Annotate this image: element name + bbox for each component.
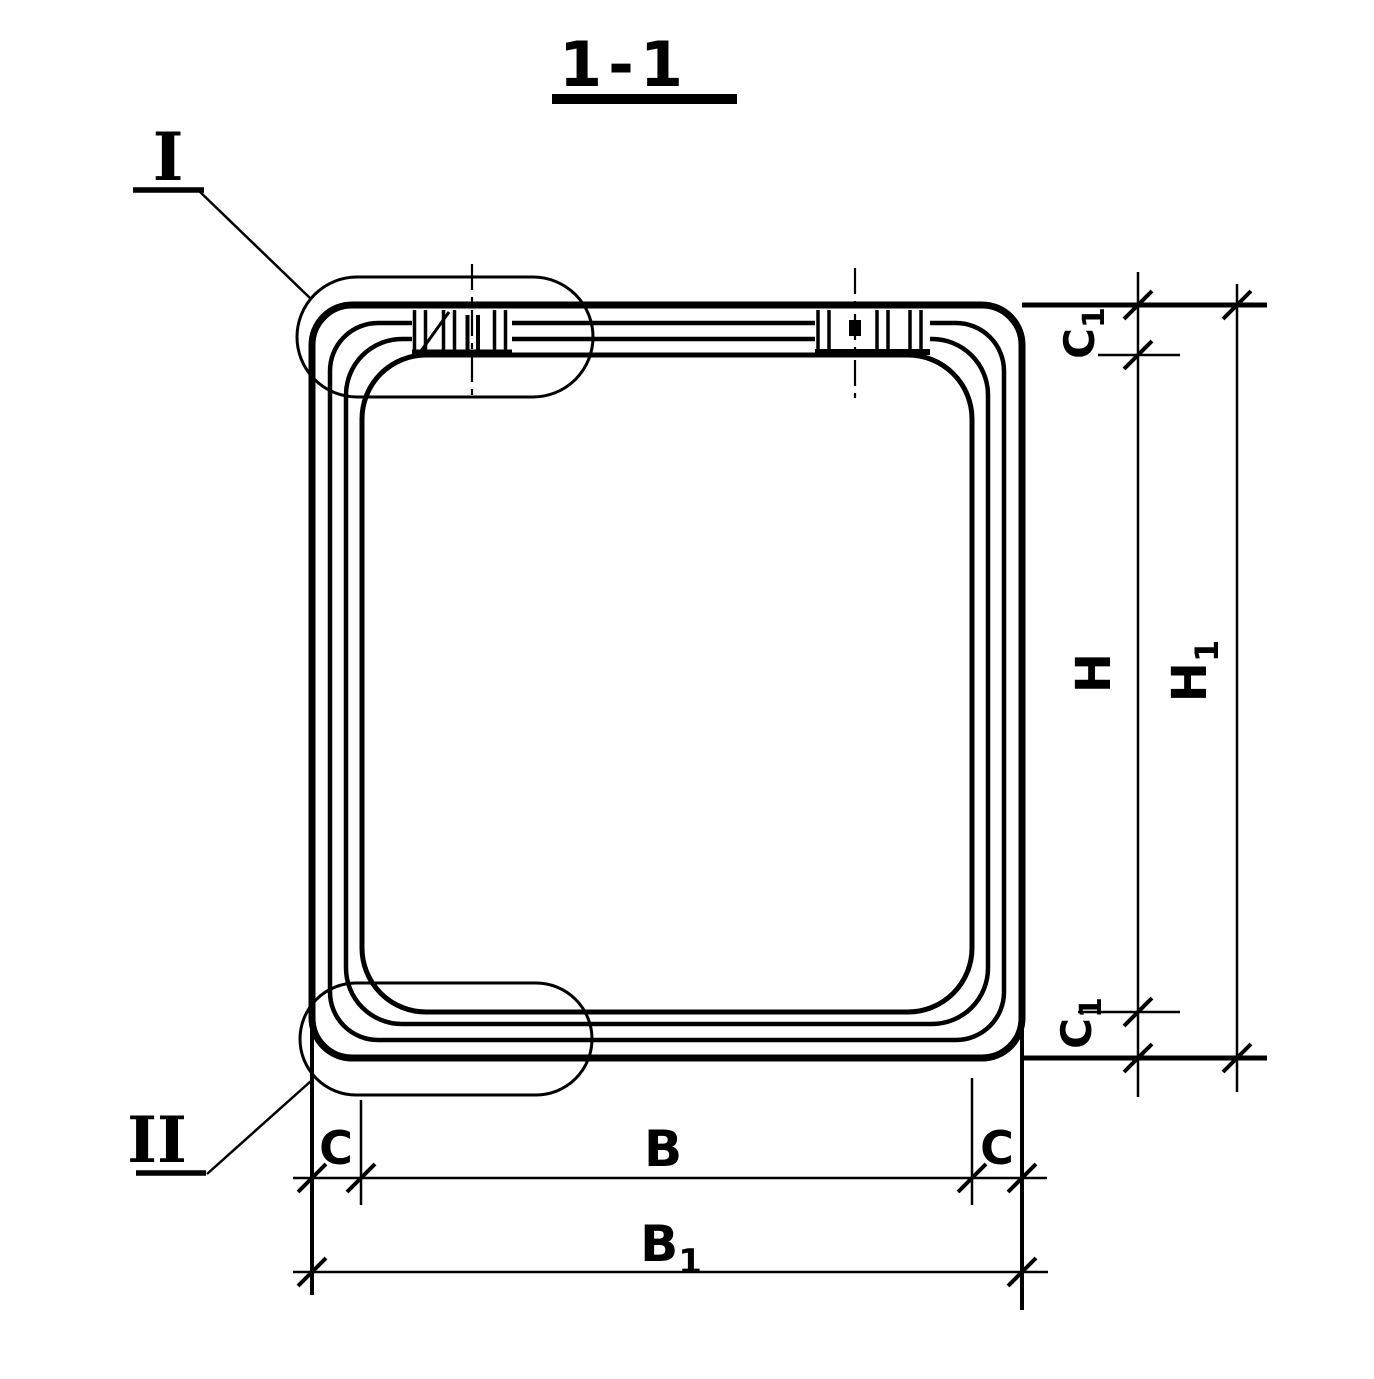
top-slab-joint-right	[815, 268, 930, 398]
callout-I-leader	[197, 189, 311, 299]
outer-contour	[312, 305, 1022, 1058]
dim-label-main: C	[1055, 328, 1104, 359]
dim-label-main: B	[640, 1215, 678, 1273]
dim-label-h1: H1	[1162, 640, 1226, 702]
dim-label-sub: 1	[678, 1242, 702, 1282]
dim-label-sub: 1	[1074, 997, 1109, 1018]
callout-I-label: I	[153, 118, 184, 196]
callout-I: I	[133, 118, 311, 299]
dim-label-c1-top: C1	[1055, 307, 1112, 359]
dimension-labels: C1 H H1 C1 C B C B1	[319, 307, 1226, 1282]
section-title: 1-1	[552, 28, 737, 101]
extension-lines	[312, 305, 1267, 1310]
dim-label-h: H	[1066, 653, 1122, 693]
dim-label-c-right: C	[980, 1121, 1014, 1175]
dim-label-main: C	[1052, 1018, 1101, 1049]
dim-label-sub: 1	[1077, 307, 1112, 328]
dim-label-c1-bottom: C1	[1052, 997, 1109, 1049]
top-slab-joint-left	[412, 264, 512, 402]
dim-label-b: B	[644, 1120, 682, 1178]
dim-label-main: H	[1162, 662, 1218, 702]
dimension-lines	[293, 272, 1237, 1272]
section-drawing: I II 1-1	[0, 0, 1374, 1379]
callout-II: II	[127, 1081, 311, 1178]
dim-label-main: C	[319, 1121, 353, 1175]
section-title-text: 1-1	[559, 28, 689, 101]
joint-gap	[815, 311, 930, 351]
dim-label-sub: 1	[1188, 640, 1226, 662]
callout-II-label: II	[127, 1103, 187, 1178]
dim-label-c-left: C	[319, 1121, 353, 1175]
callout-II-leader	[207, 1081, 311, 1174]
dim-label-b1: B1	[640, 1215, 702, 1282]
inner-opening-contour	[362, 355, 972, 1012]
dim-label-main: H	[1066, 653, 1122, 693]
drawing-sheet: I II 1-1	[0, 0, 1374, 1379]
dim-label-main: B	[644, 1120, 682, 1178]
dim-label-main: C	[980, 1121, 1014, 1175]
box-section	[312, 305, 1022, 1058]
dimension-ticks	[298, 291, 1251, 1286]
wall-layer-line-2	[346, 339, 988, 1024]
wall-layer-line-1	[330, 323, 1004, 1040]
